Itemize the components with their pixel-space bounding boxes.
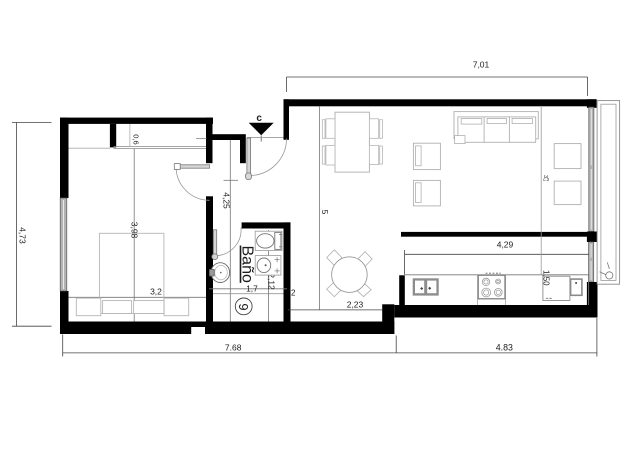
svg-text:4,73: 4,73: [18, 227, 28, 244]
svg-text:1,50: 1,50: [542, 270, 551, 286]
svg-text:3,98: 3,98: [130, 222, 140, 239]
svg-text:2,12: 2,12: [267, 273, 277, 290]
svg-text:3: 3: [542, 175, 548, 178]
svg-text:4.83: 4.83: [496, 342, 513, 352]
svg-text:6: 6: [236, 303, 251, 310]
svg-text:2: 2: [291, 289, 296, 298]
svg-text:4,25: 4,25: [222, 192, 232, 209]
svg-text:7.68: 7.68: [225, 342, 242, 352]
svg-text:3,2: 3,2: [150, 287, 162, 297]
svg-text:Baño: Baño: [238, 246, 255, 283]
svg-text:0,6: 0,6: [132, 134, 141, 144]
svg-text:5: 5: [320, 210, 330, 215]
svg-text:2,23: 2,23: [347, 300, 364, 310]
svg-text:c: c: [256, 113, 262, 124]
svg-text:1,7: 1,7: [246, 283, 258, 293]
svg-text:7,01: 7,01: [473, 60, 490, 70]
svg-text:4,29: 4,29: [497, 239, 514, 249]
